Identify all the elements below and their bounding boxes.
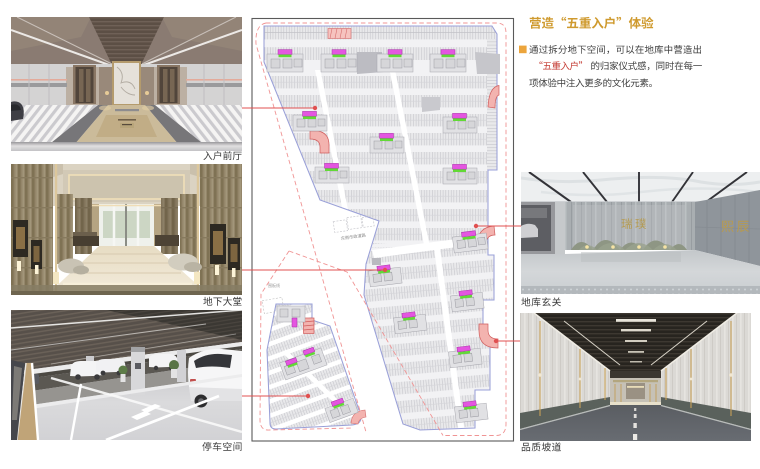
svg-text:围板线: 围板线 [268, 282, 280, 288]
